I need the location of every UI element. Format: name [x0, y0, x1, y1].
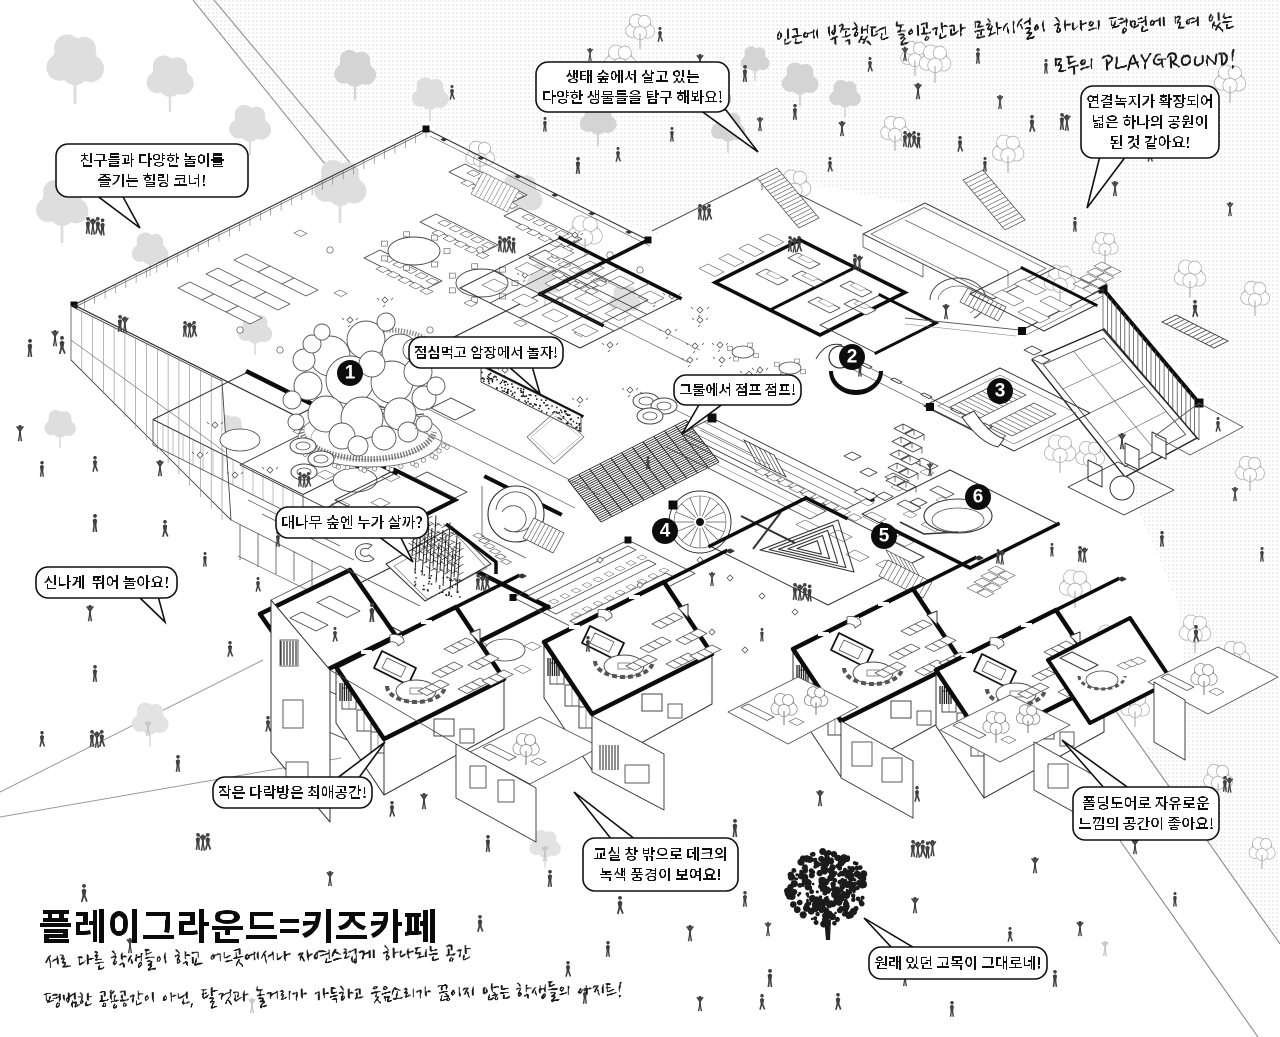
svg-text:4: 4 — [660, 521, 671, 542]
svg-text:1: 1 — [345, 363, 356, 384]
svg-text:2: 2 — [847, 347, 858, 368]
svg-text:6: 6 — [973, 487, 984, 508]
svg-text:5: 5 — [879, 526, 890, 547]
svg-text:3: 3 — [995, 381, 1006, 402]
